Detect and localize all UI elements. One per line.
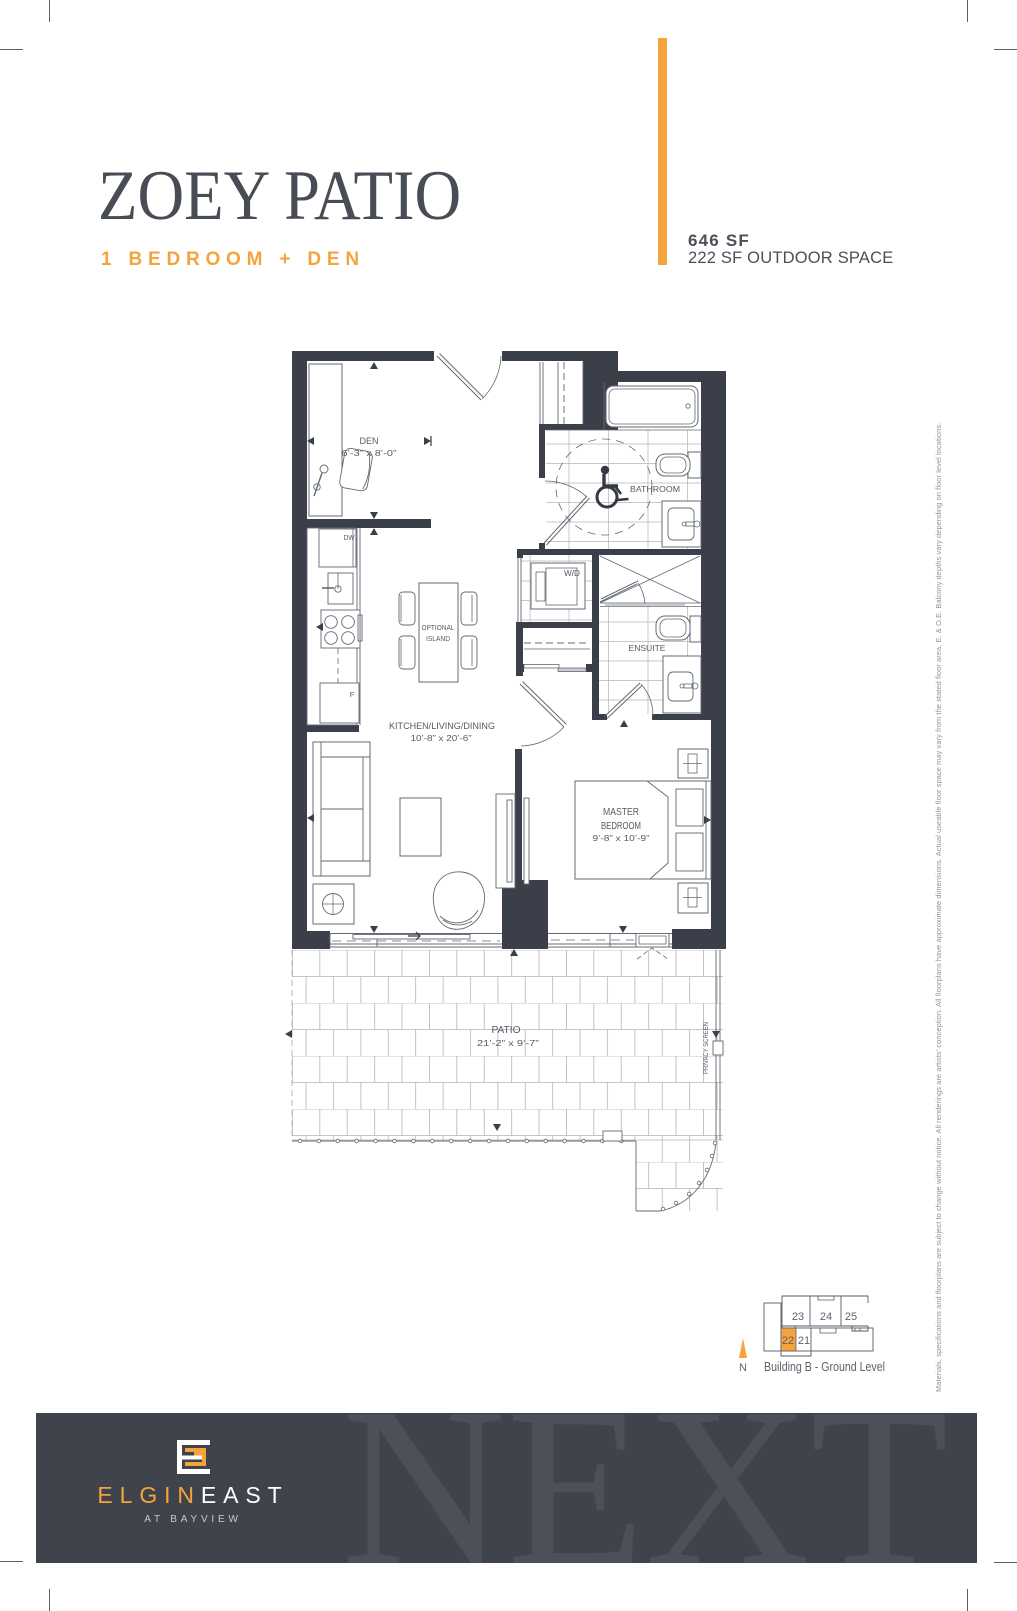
svg-text:MASTER: MASTER [603, 807, 639, 818]
svg-text:ELGINEAST: ELGINEAST [97, 1482, 288, 1508]
svg-text:OPTIONAL: OPTIONAL [422, 623, 455, 632]
svg-text:25: 25 [845, 1311, 857, 1323]
svg-text:Building B - Ground Level: Building B - Ground Level [764, 1360, 885, 1374]
svg-text:F: F [350, 690, 355, 699]
svg-text:PRIVACY SCREEN: PRIVACY SCREEN [701, 1022, 710, 1074]
svg-text:KITCHEN/LIVING/DINING: KITCHEN/LIVING/DINING [389, 721, 495, 732]
svg-text:DEN: DEN [360, 436, 379, 446]
svg-text:21’-2” x 9’-7”: 21’-2” x 9’-7” [477, 1038, 539, 1048]
svg-text:ENSUITE: ENSUITE [629, 643, 666, 653]
svg-text:22: 22 [782, 1335, 794, 1347]
svg-text:PATIO: PATIO [492, 1025, 521, 1036]
svg-text:6’-3” x 8’-0”: 6’-3” x 8’-0” [342, 449, 397, 458]
svg-text:W/D: W/D [564, 569, 580, 578]
svg-text:23: 23 [792, 1311, 804, 1323]
svg-text:21: 21 [798, 1335, 810, 1347]
svg-text:BEDROOM: BEDROOM [601, 821, 641, 832]
svg-text:BATHROOM: BATHROOM [630, 484, 680, 494]
svg-text:AT BAYVIEW: AT BAYVIEW [144, 1514, 241, 1525]
svg-text:24: 24 [820, 1311, 832, 1323]
svg-text:ISLAND: ISLAND [426, 634, 451, 643]
svg-text:10’-8” x 20’-6”: 10’-8” x 20’-6” [411, 734, 472, 743]
svg-text:NEXT: NEXT [342, 1413, 949, 1563]
svg-text:9’-8” x 10’-9”: 9’-8” x 10’-9” [593, 834, 650, 843]
svg-text:N: N [739, 1362, 747, 1374]
